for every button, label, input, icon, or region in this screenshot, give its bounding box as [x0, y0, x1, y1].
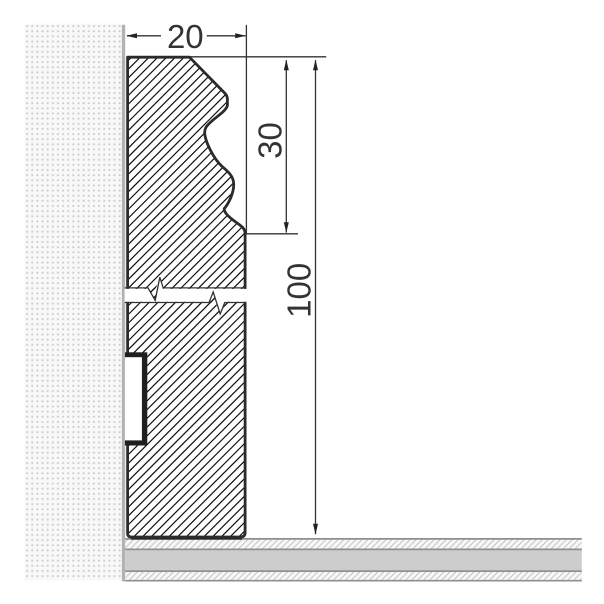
svg-text:30: 30	[252, 122, 289, 159]
svg-text:100: 100	[281, 263, 318, 318]
svg-text:20: 20	[167, 18, 204, 55]
